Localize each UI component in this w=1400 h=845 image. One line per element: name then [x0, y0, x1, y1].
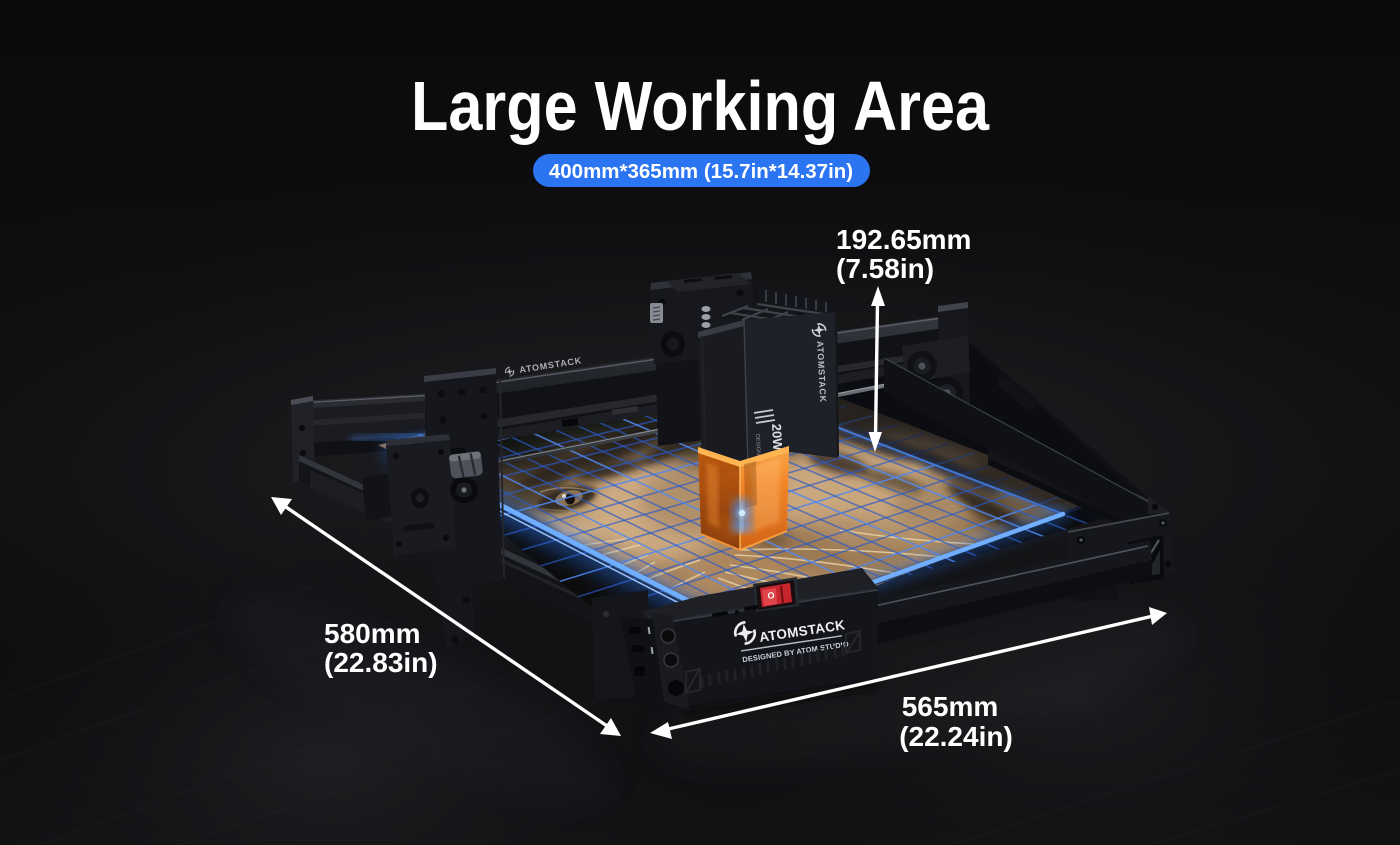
svg-text:(22.83in): (22.83in) — [324, 647, 438, 678]
svg-text:580mm: 580mm — [324, 618, 421, 649]
svg-text:192.65mm: 192.65mm — [836, 224, 971, 255]
svg-text:O: O — [767, 590, 775, 601]
svg-text:400mm*365mm (15.7in*14.37in): 400mm*365mm (15.7in*14.37in) — [549, 160, 853, 183]
svg-text:Large Working Area: Large Working Area — [411, 67, 990, 145]
svg-text:(22.24in): (22.24in) — [899, 721, 1013, 752]
svg-text:20W: 20W — [769, 423, 785, 451]
svg-text:565mm: 565mm — [902, 691, 999, 722]
svg-text:(7.58in): (7.58in) — [836, 253, 934, 284]
